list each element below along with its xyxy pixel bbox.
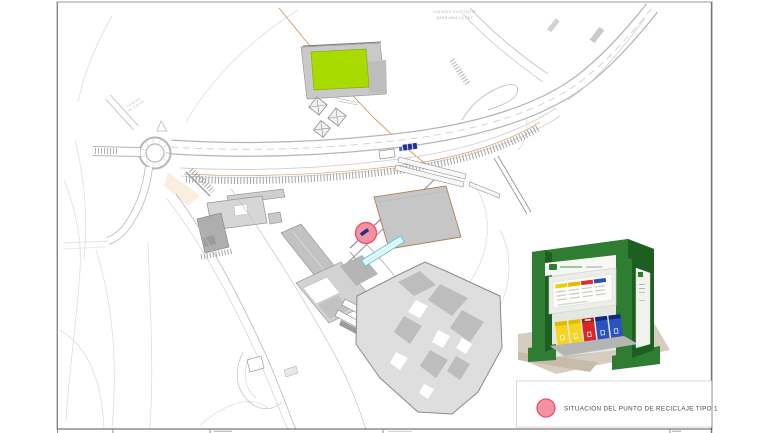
site-plan-sheet: COLEGIO EXISTENTE BARRIADA LA PAZ CENTRO… (0, 0, 770, 433)
recycling-point-inset (518, 239, 670, 374)
legend-label: SITUACIÓN DEL PUNTO DE RECICLAJE TIPO 1 (564, 404, 718, 413)
school-annotation-line2: BARRIADA LA PAZ (437, 16, 474, 20)
building-hall (374, 186, 461, 249)
kiosk-side-panel (636, 268, 650, 348)
legend-marker-icon (537, 399, 555, 417)
legend: SITUACIÓN DEL PUNTO DE RECICLAJE TIPO 1 (517, 381, 718, 427)
sports-court (311, 49, 369, 90)
school-annotation-line1: COLEGIO EXISTENTE (433, 10, 476, 14)
